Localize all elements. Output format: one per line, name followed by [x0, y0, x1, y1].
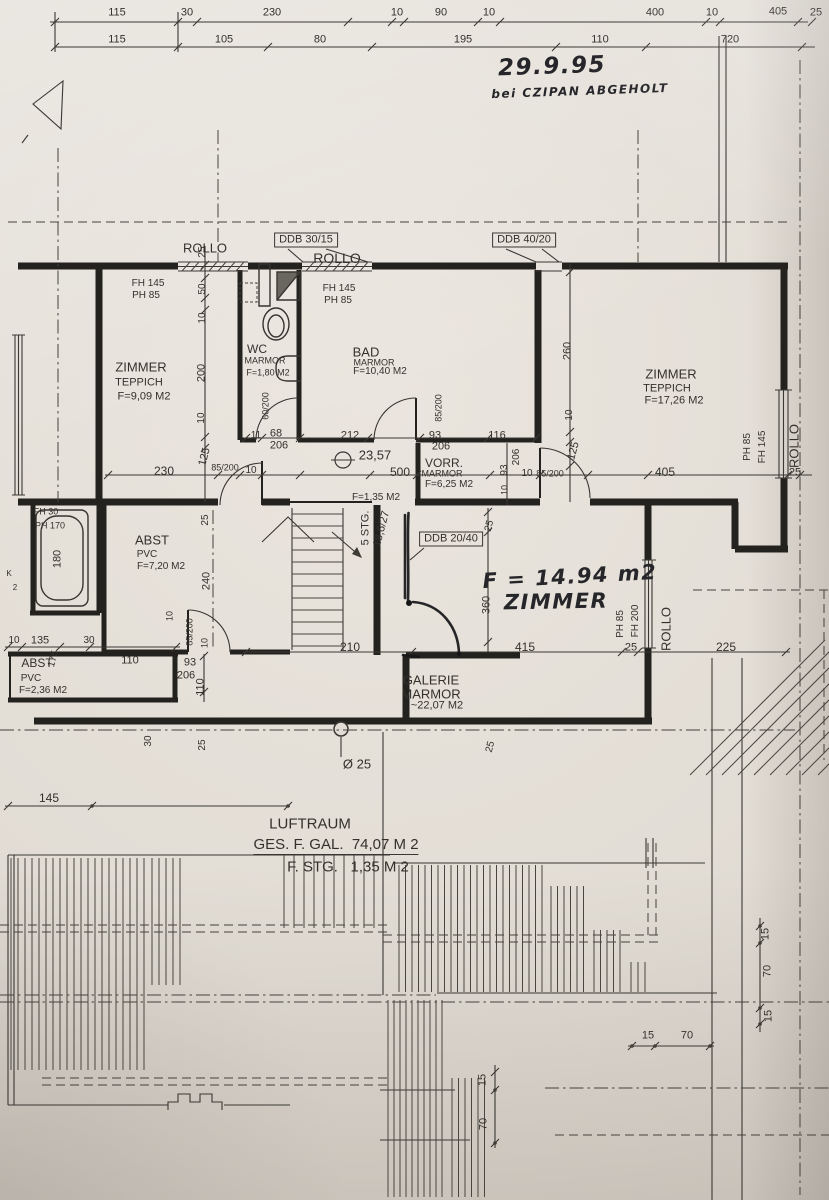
room-name: ABST [135, 534, 169, 547]
dim: 260 [563, 342, 574, 360]
dim: 90 [435, 8, 447, 19]
dim: 145 [39, 792, 59, 804]
dim: 115 [108, 35, 126, 46]
ddb-label: DDB 20/40 [419, 532, 483, 547]
dim: 105 [215, 35, 233, 46]
rollo-label: ROLLO [313, 251, 360, 265]
luftraum-title: LUFTRAUM [269, 817, 351, 832]
dim: 10 [391, 8, 403, 19]
dim: 212 [341, 431, 359, 442]
dim: 230 [263, 8, 281, 19]
dim: 70 [479, 1118, 490, 1130]
dim: 720 [721, 35, 739, 46]
dim: 10 [521, 469, 532, 479]
dim: 10 [198, 312, 208, 323]
dim: 195 [454, 35, 472, 46]
dim: K [6, 570, 11, 578]
door-spec: 60/200 [262, 392, 271, 420]
dim: 30 [83, 636, 94, 646]
dim: 15 [761, 928, 772, 940]
dim: 93 [184, 658, 196, 669]
dim: 25 [810, 8, 822, 19]
dim: 360 [482, 596, 493, 614]
room-floor: TEPPICH [643, 384, 691, 395]
door-spec: 85/200 [435, 394, 444, 422]
hand-room: ZIMMER [504, 591, 609, 614]
room-floor: MARMOR [245, 357, 286, 366]
hand-date: 29.9.95 [498, 54, 607, 81]
window-spec: PH 85 [616, 610, 626, 638]
room-name: VORR. [425, 457, 463, 469]
room-name: GALERIE [403, 674, 459, 687]
dim: 10 [501, 485, 510, 495]
ddb-label: DDB 40/20 [492, 233, 556, 248]
window-spec: PH 85 [324, 296, 352, 306]
luftraum-area: GES. F. GAL. 74,07 M 2 [253, 837, 418, 855]
window-spec: FH 145 [758, 431, 768, 464]
dim: 10 [245, 466, 256, 476]
dim: 500 [390, 466, 410, 478]
dim: 50 [198, 283, 208, 294]
dim: 30 [144, 735, 154, 746]
ddb-label: DDB 30/15 [274, 233, 338, 248]
dim: 25 [625, 643, 637, 654]
room-area: F=7,20 M2 [137, 562, 185, 572]
dim: 25 [198, 246, 208, 257]
window-spec: FH 30 [34, 508, 59, 517]
dim: 10 [197, 412, 207, 423]
dim: 135 [31, 636, 49, 647]
door-spec: 85/200 [211, 464, 239, 473]
room-name: ZIMMER [645, 368, 696, 381]
room-floor: TEPPICH [115, 378, 163, 389]
room-floor: PVC [137, 550, 158, 560]
dim: 25 [485, 740, 498, 753]
dim: 10 [201, 638, 210, 648]
window-spec: PH 85 [743, 433, 753, 461]
dim: 180 [53, 550, 64, 568]
dim: 110 [591, 35, 609, 46]
level-label: 23,57 [359, 449, 392, 462]
room-area: F=17,26 M2 [644, 396, 703, 407]
dim: 115 [108, 8, 126, 19]
dim: 206 [177, 671, 195, 682]
dim: 116 [488, 431, 506, 442]
window-spec: FH 145 [132, 279, 165, 289]
dim: 110 [196, 678, 207, 696]
dim: 200 [197, 364, 208, 382]
column-label: Ø 25 [343, 758, 371, 771]
room-area: ~22,07 M2 [411, 701, 463, 712]
door-spec: 85/200 [536, 470, 564, 479]
room-area: F=9,09 M2 [118, 392, 171, 403]
dim: 110 [121, 656, 139, 667]
labels-layer: 1153023010901040010405251151058019511072… [0, 0, 829, 1200]
dim: 225 [716, 641, 736, 653]
dim: 25 [789, 468, 801, 479]
dim: 25 [484, 519, 497, 532]
dim: 15 [764, 1010, 775, 1022]
room-area: F=10,40 M2 [353, 367, 407, 377]
window-spec: FH 145 [323, 284, 356, 294]
window-spec: PH 85 [132, 291, 160, 301]
door-spec: 85/200 [186, 618, 195, 646]
dim: 70 [681, 1031, 693, 1042]
room-name: ABST [21, 657, 52, 669]
dim: 230 [154, 465, 174, 477]
dim: 210 [340, 641, 360, 653]
rollo-label: ROLLO [788, 424, 801, 468]
luftraum-stair-area: F. STG. 1,35 M 2 [287, 860, 409, 875]
dim: 206 [512, 449, 522, 466]
dim: 10 [565, 409, 575, 420]
hand-area: F = 14.94 m2 [482, 562, 658, 592]
dim: 2 [13, 584, 17, 592]
floor-plan-sheet: 1153023010901040010405251151058019511072… [0, 0, 829, 1200]
dim: 125 [566, 441, 581, 462]
dim: 240 [202, 572, 213, 590]
dim: 400 [646, 8, 664, 19]
rollo-label: ROLLO [660, 607, 673, 651]
dim: 415 [515, 641, 535, 653]
window-spec: PH 170 [35, 522, 65, 531]
stair-label: 18,6/27 [372, 510, 392, 548]
room-area: F=1,80 M2 [246, 369, 289, 378]
window-spec: FH 200 [631, 605, 641, 638]
dim: 206 [432, 442, 450, 453]
dim: 80 [314, 35, 326, 46]
room-floor: PVC [21, 674, 42, 684]
room-name: WC [247, 343, 267, 355]
dim: 405 [655, 466, 675, 478]
dim: 93 [500, 464, 510, 475]
room-name: ZIMMER [115, 361, 166, 374]
dim: 11 [251, 431, 261, 441]
hand-note: bei CZIPAN ABGEHOLT [491, 82, 669, 100]
dim: 70 [763, 965, 774, 977]
dim: 25 [201, 514, 211, 525]
dim: 206 [270, 441, 288, 452]
stair-label: 5 STG. [361, 511, 372, 546]
dim: 10 [8, 636, 19, 646]
dim: 68 [270, 429, 282, 440]
dim: 15 [642, 1031, 654, 1042]
dim: 25 [198, 739, 208, 750]
dim: 10 [483, 8, 495, 19]
room-area: F=6,25 M2 [425, 480, 473, 490]
dim: 405 [769, 7, 787, 18]
dim: 10 [166, 611, 175, 621]
room-area: F=2,36 M2 [19, 686, 67, 696]
dim: 15 [478, 1074, 489, 1086]
dim: 30 [181, 8, 193, 19]
room-area: F=1,35 M2 [352, 493, 400, 503]
dim: 10 [706, 8, 718, 19]
room-floor: MARMOR [422, 470, 463, 479]
